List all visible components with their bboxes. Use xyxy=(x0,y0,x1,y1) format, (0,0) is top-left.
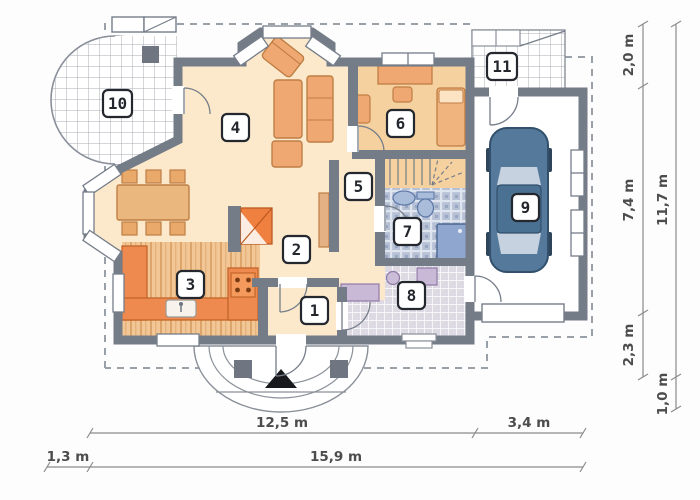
room-label: 8 xyxy=(398,282,425,309)
kitchen-window-bottom xyxy=(157,334,199,346)
room-label: 6 xyxy=(387,110,414,137)
porch-pillar-left xyxy=(234,360,252,378)
dim-bottom-garage: 3,4 m xyxy=(508,415,551,431)
bathroom-sink-icon xyxy=(393,191,415,205)
garage-back-door xyxy=(489,86,518,98)
room-label: 9 xyxy=(512,194,539,221)
svg-text:8: 8 xyxy=(407,286,417,305)
svg-text:3: 3 xyxy=(186,275,196,294)
sofa xyxy=(307,76,333,142)
stove-icon xyxy=(231,273,255,297)
stairs-floor xyxy=(381,156,468,188)
room-label: 3 xyxy=(177,271,204,298)
svg-text:9: 9 xyxy=(521,198,531,217)
room-label: 10 xyxy=(103,90,132,117)
room-label: 5 xyxy=(345,173,372,200)
front-door xyxy=(276,334,306,347)
dim-right-low: 2,3 m xyxy=(621,324,637,367)
armchair xyxy=(272,141,302,167)
porch-pillar-right xyxy=(330,360,348,378)
floor-plan-page: 1 2 3 4 5 6 7 8 9 10 11 2,0 m 7,4 m 2,3 … xyxy=(0,0,700,500)
room-label: 7 xyxy=(394,218,421,245)
terrace-pillar xyxy=(142,46,159,63)
back-steps xyxy=(402,334,436,348)
sofa xyxy=(274,80,302,138)
svg-text:10: 10 xyxy=(108,94,127,113)
svg-text:7: 7 xyxy=(403,222,413,241)
garage-door xyxy=(482,304,564,322)
svg-text:1: 1 xyxy=(310,301,320,320)
dim-right-total: 11,7 m xyxy=(655,174,671,226)
dim-right-bottom: 1,0 m xyxy=(655,373,671,416)
desk-chair xyxy=(393,87,412,102)
dim-right-mid: 7,4 m xyxy=(621,179,637,222)
dim-right-top: 2,0 m xyxy=(621,34,637,77)
dim-bottom-total: 15,9 m xyxy=(310,449,362,465)
svg-text:11: 11 xyxy=(492,57,511,76)
water-heater xyxy=(387,272,400,285)
dim-bottom-main: 12,5 m xyxy=(256,415,308,431)
svg-text:2: 2 xyxy=(292,240,302,259)
bay-window xyxy=(263,26,311,38)
room-label: 2 xyxy=(283,236,310,263)
bed xyxy=(437,88,465,146)
desk xyxy=(378,66,432,84)
kitchen-window xyxy=(113,274,124,312)
svg-text:6: 6 xyxy=(396,114,406,133)
kitchen-sink-icon xyxy=(166,300,196,317)
upper-balcony-outline xyxy=(112,17,176,32)
hall-cabinet xyxy=(319,193,329,247)
entrance-steps xyxy=(194,346,368,412)
dim-bottom-left: 1,3 m xyxy=(47,449,90,465)
svg-text:5: 5 xyxy=(354,177,364,196)
toilet-icon xyxy=(417,192,434,217)
svg-text:4: 4 xyxy=(231,118,241,137)
shower-icon xyxy=(437,224,467,260)
room-label: 11 xyxy=(487,53,517,80)
room-label: 4 xyxy=(222,114,249,141)
floor-plan-canvas: 1 2 3 4 5 6 7 8 9 10 11 2,0 m 7,4 m 2,3 … xyxy=(0,0,700,500)
dining-window xyxy=(83,192,94,234)
room-label: 1 xyxy=(301,297,328,324)
dining-table xyxy=(117,170,189,235)
